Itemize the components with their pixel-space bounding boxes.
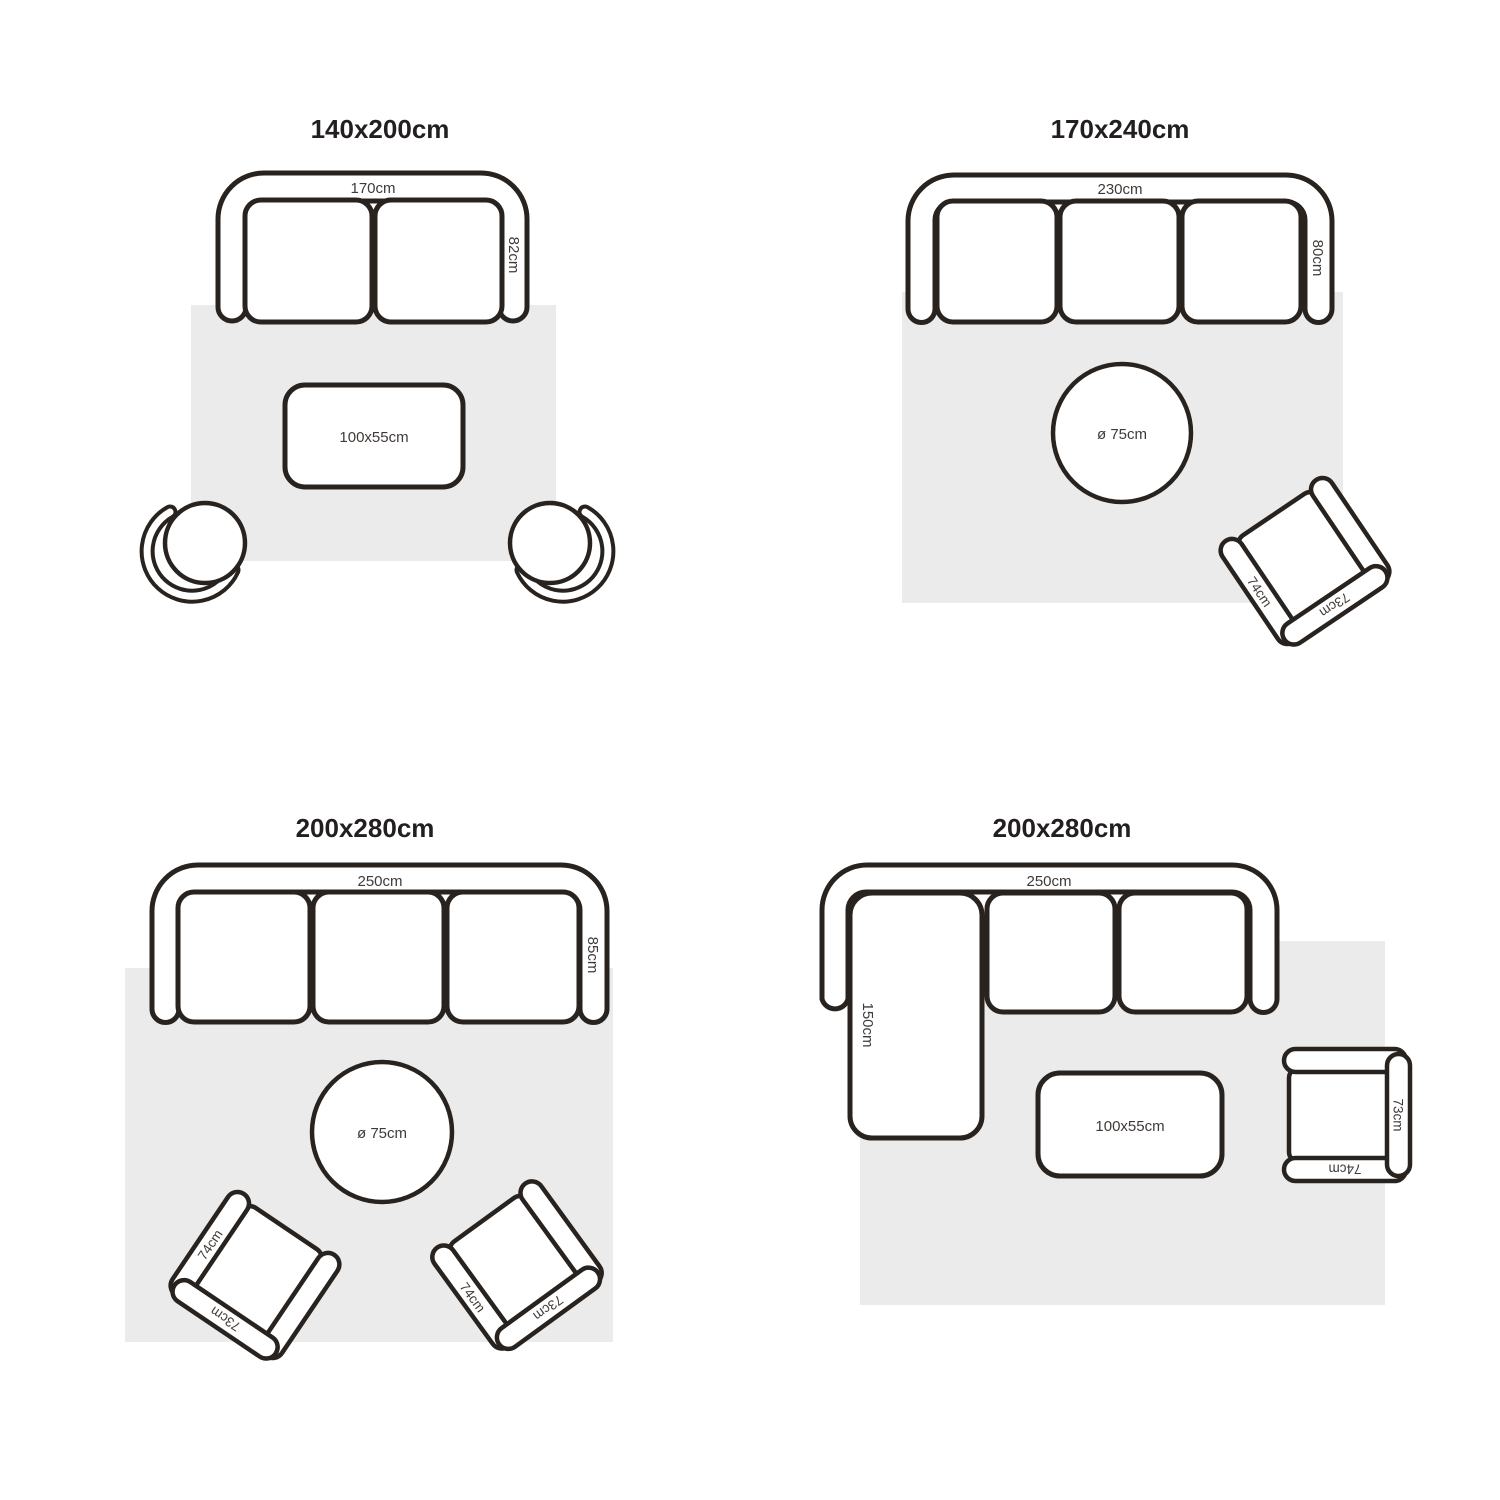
sofa-seat-cushion	[313, 892, 444, 1022]
coffee-table: 100x55cm	[285, 385, 463, 487]
coffee-table-size-label: 100x55cm	[1095, 1118, 1164, 1135]
sofa-seat-cushion	[937, 201, 1057, 322]
chair-seat-circle	[510, 503, 590, 583]
sofa-seat-cushion	[245, 200, 372, 322]
coffee-table-size-label: 100x55cm	[339, 429, 408, 446]
panel-title: 170x240cm	[1051, 114, 1190, 144]
swivel-chair-right	[510, 503, 608, 596]
sofa-seat-cushion	[447, 892, 579, 1022]
sofa-seat-cushion	[1060, 201, 1179, 322]
panel-title: 140x200cm	[311, 114, 450, 144]
coffee-table: 100x55cm	[1038, 1073, 1222, 1176]
sofa-three-seat: 250cm 85cm	[152, 865, 607, 1022]
sofa-depth-label: 82cm	[505, 237, 522, 274]
round-table: ø 75cm	[312, 1062, 452, 1202]
panel-170x240: 170x240cm 230cm 80cm ø 75cm 74cm 73cm	[902, 114, 1396, 652]
sofa-seat-cushion	[1182, 201, 1301, 322]
sofa-width-label: 250cm	[1026, 873, 1071, 890]
round-table-size-label: ø 75cm	[357, 1125, 407, 1142]
rug-size-guide-diagram: 140x200cm 170cm 82cm 100x55cm 170x240cm	[0, 0, 1500, 1500]
sofa-width-label: 250cm	[357, 873, 402, 890]
sofa-three-seat: 230cm 80cm	[908, 175, 1332, 323]
panel-title: 200x280cm	[993, 813, 1132, 843]
sofa-seat-cushion	[1119, 893, 1247, 1012]
armchair-width-label: 73cm	[1391, 1098, 1406, 1131]
round-table: ø 75cm	[1053, 364, 1191, 502]
panel-200x280-left: 200x280cm 250cm 85cm ø 75cm 74cm 73cm	[125, 813, 613, 1366]
armchair-depth-label: 74cm	[1328, 1162, 1361, 1177]
sofa-seat-cushion	[987, 893, 1115, 1012]
rug-size-guide: 140x200cm 170cm 82cm 100x55cm 170x240cm	[0, 0, 1500, 1500]
sofa-seat-cushion	[375, 200, 502, 322]
sofa-depth-label: 85cm	[584, 937, 601, 974]
armchair: 74cm 73cm	[1284, 1049, 1410, 1181]
sofa-seat-cushion	[178, 892, 310, 1022]
swivel-chair-left	[147, 503, 245, 596]
sofa-depth-label: 80cm	[1309, 240, 1326, 277]
round-table-size-label: ø 75cm	[1097, 426, 1147, 443]
chaise-depth-label: 150cm	[859, 1002, 876, 1047]
chair-seat-circle	[165, 503, 245, 583]
panel-200x280-right: 200x280cm 250cm 150cm 100x55cm 74cm 73cm	[822, 813, 1410, 1305]
sofa-width-label: 230cm	[1097, 181, 1142, 198]
panel-140x200: 140x200cm 170cm 82cm 100x55cm	[147, 114, 608, 596]
armchair-seat	[1289, 1068, 1389, 1162]
sofa-two-seat: 170cm 82cm	[218, 173, 527, 322]
sofa-width-label: 170cm	[350, 180, 395, 197]
panel-title: 200x280cm	[296, 813, 435, 843]
